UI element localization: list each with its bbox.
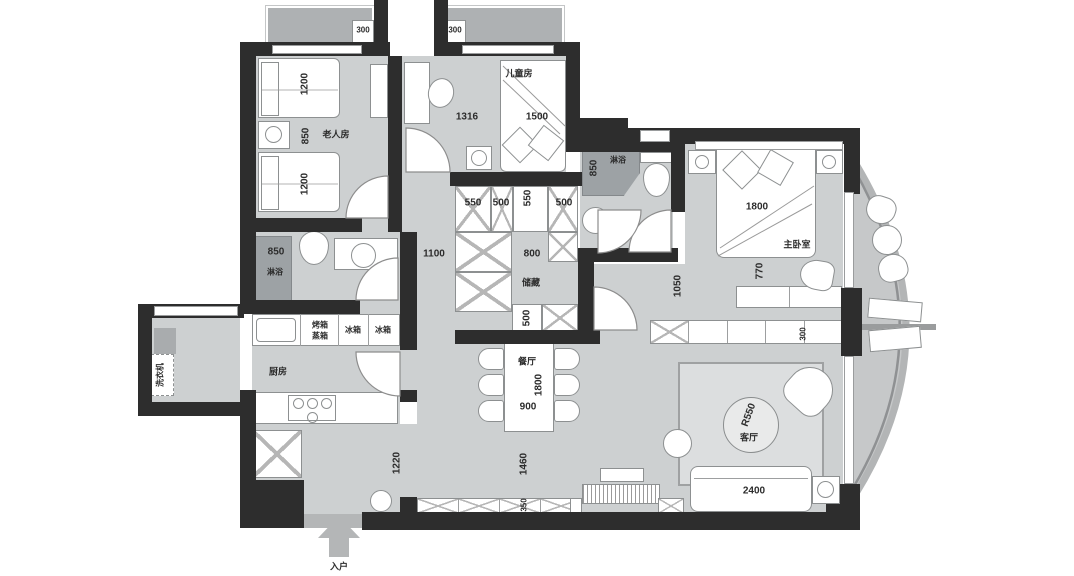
dim-bay-a: 300 — [356, 26, 369, 35]
dining-chair — [478, 348, 504, 370]
fixture-label-oven: 烤箱 — [312, 320, 328, 331]
burner-icon — [307, 412, 318, 423]
fixture-label-shower1: 淋浴 — [267, 267, 283, 278]
floor-lamp-icon — [817, 481, 834, 498]
living-top-cabinet-row — [650, 320, 843, 344]
wall — [362, 512, 860, 530]
room-label-master: 主卧室 — [783, 238, 810, 251]
dim-bath1: 850 — [268, 247, 285, 258]
dim-bench: 350 — [520, 498, 529, 511]
dining-chair — [478, 400, 504, 422]
dim-wardrobe-500a: 500 — [493, 198, 510, 209]
window-kids — [462, 45, 554, 54]
counter-divider — [300, 314, 301, 346]
wardrobe-cell — [455, 232, 512, 272]
counter-divider — [368, 314, 369, 346]
dim-master-bed: 1800 — [746, 202, 768, 213]
room-label-living: 客厅 — [740, 431, 758, 444]
dining-chair — [554, 374, 580, 396]
master-lamp-icon — [695, 155, 709, 169]
wall — [240, 480, 304, 528]
dining-chair — [478, 374, 504, 396]
wall — [374, 0, 388, 54]
fixture-label-washer: 洗衣机 — [155, 363, 166, 387]
room-label-dining: 餐厅 — [518, 355, 536, 368]
elder-bed-top-pillow — [261, 62, 279, 116]
kitchen-gray-unit — [154, 328, 176, 354]
kids-stool-lamp-icon — [471, 150, 487, 166]
window-kitchen — [154, 306, 238, 316]
wardrobe-cell — [548, 232, 578, 262]
cabinet-cell — [418, 499, 459, 513]
tv-soundbar — [600, 468, 644, 482]
dim-wardrobe-800: 800 — [524, 249, 541, 260]
dim-wardrobe-550a: 550 — [465, 198, 482, 209]
dining-chair — [554, 400, 580, 422]
fixture-label-shower2: 淋浴 — [610, 155, 626, 166]
window-master — [695, 141, 843, 150]
dim-corridor: 1050 — [673, 275, 684, 297]
dim-bay-b: 300 — [448, 26, 461, 35]
fixture-label-fridge2: 冰箱 — [375, 325, 391, 336]
tv-console — [582, 484, 660, 504]
dim-kids-left: 1316 — [456, 112, 478, 123]
toilet2-tank — [640, 152, 672, 163]
dim-bath2: 850 — [589, 160, 600, 177]
room-label-elder: 老人房 — [322, 128, 349, 141]
wall — [388, 56, 402, 232]
dim-hall: 1100 — [423, 249, 445, 260]
elder-bed-bottom-pillow — [261, 156, 279, 210]
dim-wardrobe-500b: 500 — [556, 198, 573, 209]
room-label-kitchen: 厨房 — [269, 365, 287, 378]
dim-sofa: 2400 — [743, 486, 765, 497]
stove — [288, 395, 336, 421]
wall — [240, 218, 362, 232]
wall — [240, 300, 360, 314]
window-bath2 — [640, 130, 670, 142]
wall — [138, 402, 244, 416]
wall — [240, 42, 256, 314]
kids-desk — [404, 62, 430, 124]
door-gap-patch3 — [400, 350, 417, 390]
door-gap-patch2 — [360, 300, 400, 314]
dining-chair — [554, 348, 580, 370]
balcony-bench — [867, 298, 923, 323]
cabinet-cell — [459, 499, 500, 513]
sofa-back-line — [694, 478, 808, 479]
fixture-label-fridge1: 冰箱 — [345, 325, 361, 336]
dim-dining-clear: 1460 — [519, 453, 530, 475]
burner-icon — [321, 398, 332, 409]
room-label-kids: 儿童房 — [505, 67, 532, 80]
elder-lamp-icon — [265, 126, 282, 143]
fixture-label-steamer: 蒸箱 — [312, 331, 328, 342]
kitchen-sink — [256, 318, 296, 342]
sink2 — [582, 207, 609, 234]
sink1 — [351, 243, 376, 268]
bench-cell — [737, 287, 790, 307]
balcony-chair — [875, 251, 911, 285]
dim-elder-bed-top: 1200 — [300, 73, 311, 95]
wall — [240, 390, 256, 484]
cabinet-cell — [651, 321, 689, 343]
dim-wardrobe-550b: 550 — [523, 190, 534, 207]
dim-kids-bed: 1500 — [526, 112, 548, 123]
door-gap-patch1 — [362, 218, 388, 232]
floor-plan: 300 300 1200 850 老人房 1200 儿童房 1316 1500 … — [0, 0, 1074, 576]
dim-dining-table-len: 1800 — [534, 374, 545, 396]
window-balcony-upper — [844, 192, 854, 288]
cabinet-cell — [689, 321, 727, 343]
entry-label: 入户 — [330, 560, 348, 573]
entry-cabinet — [252, 430, 302, 478]
wall — [400, 390, 417, 402]
window-elder — [272, 45, 362, 54]
balcony-bench — [868, 326, 922, 352]
cabinet-cell — [728, 321, 766, 343]
entry-door-leaf — [304, 514, 362, 528]
cabinet-cell — [805, 321, 842, 343]
wall — [400, 232, 417, 350]
balcony-table — [872, 225, 902, 255]
wardrobe-cell — [548, 186, 578, 232]
dim-dining-table-wid: 900 — [520, 402, 537, 413]
dim-master-gap: 770 — [755, 263, 766, 280]
window-balcony-lower — [844, 356, 854, 484]
wardrobe-cell — [491, 186, 513, 232]
master-lamp-icon — [822, 155, 836, 169]
wardrobe-cell — [455, 272, 512, 312]
dim-entry-opening: 1220 — [392, 452, 403, 474]
wall — [671, 140, 685, 212]
side-table-round — [663, 429, 692, 458]
wardrobe-cell — [542, 304, 578, 332]
dim-elder-bed-bottom: 1200 — [300, 173, 311, 195]
balcony-chair — [862, 192, 899, 228]
wall — [455, 330, 600, 344]
wardrobe-cell — [455, 186, 491, 232]
dim-wardrobe-500c: 500 — [522, 310, 533, 327]
entry-stool — [370, 490, 392, 512]
wall — [841, 288, 862, 356]
dim-elder-gap: 850 — [301, 128, 312, 145]
burner-icon — [293, 398, 304, 409]
elder-desk — [370, 64, 388, 118]
wall — [578, 248, 678, 262]
wall — [450, 172, 582, 186]
room-label-storage: 储藏 — [522, 276, 540, 289]
burner-icon — [307, 398, 318, 409]
wall — [138, 304, 152, 416]
counter-divider — [338, 314, 339, 346]
wall — [844, 128, 860, 194]
dim-cabinet-depth: 300 — [799, 327, 808, 340]
